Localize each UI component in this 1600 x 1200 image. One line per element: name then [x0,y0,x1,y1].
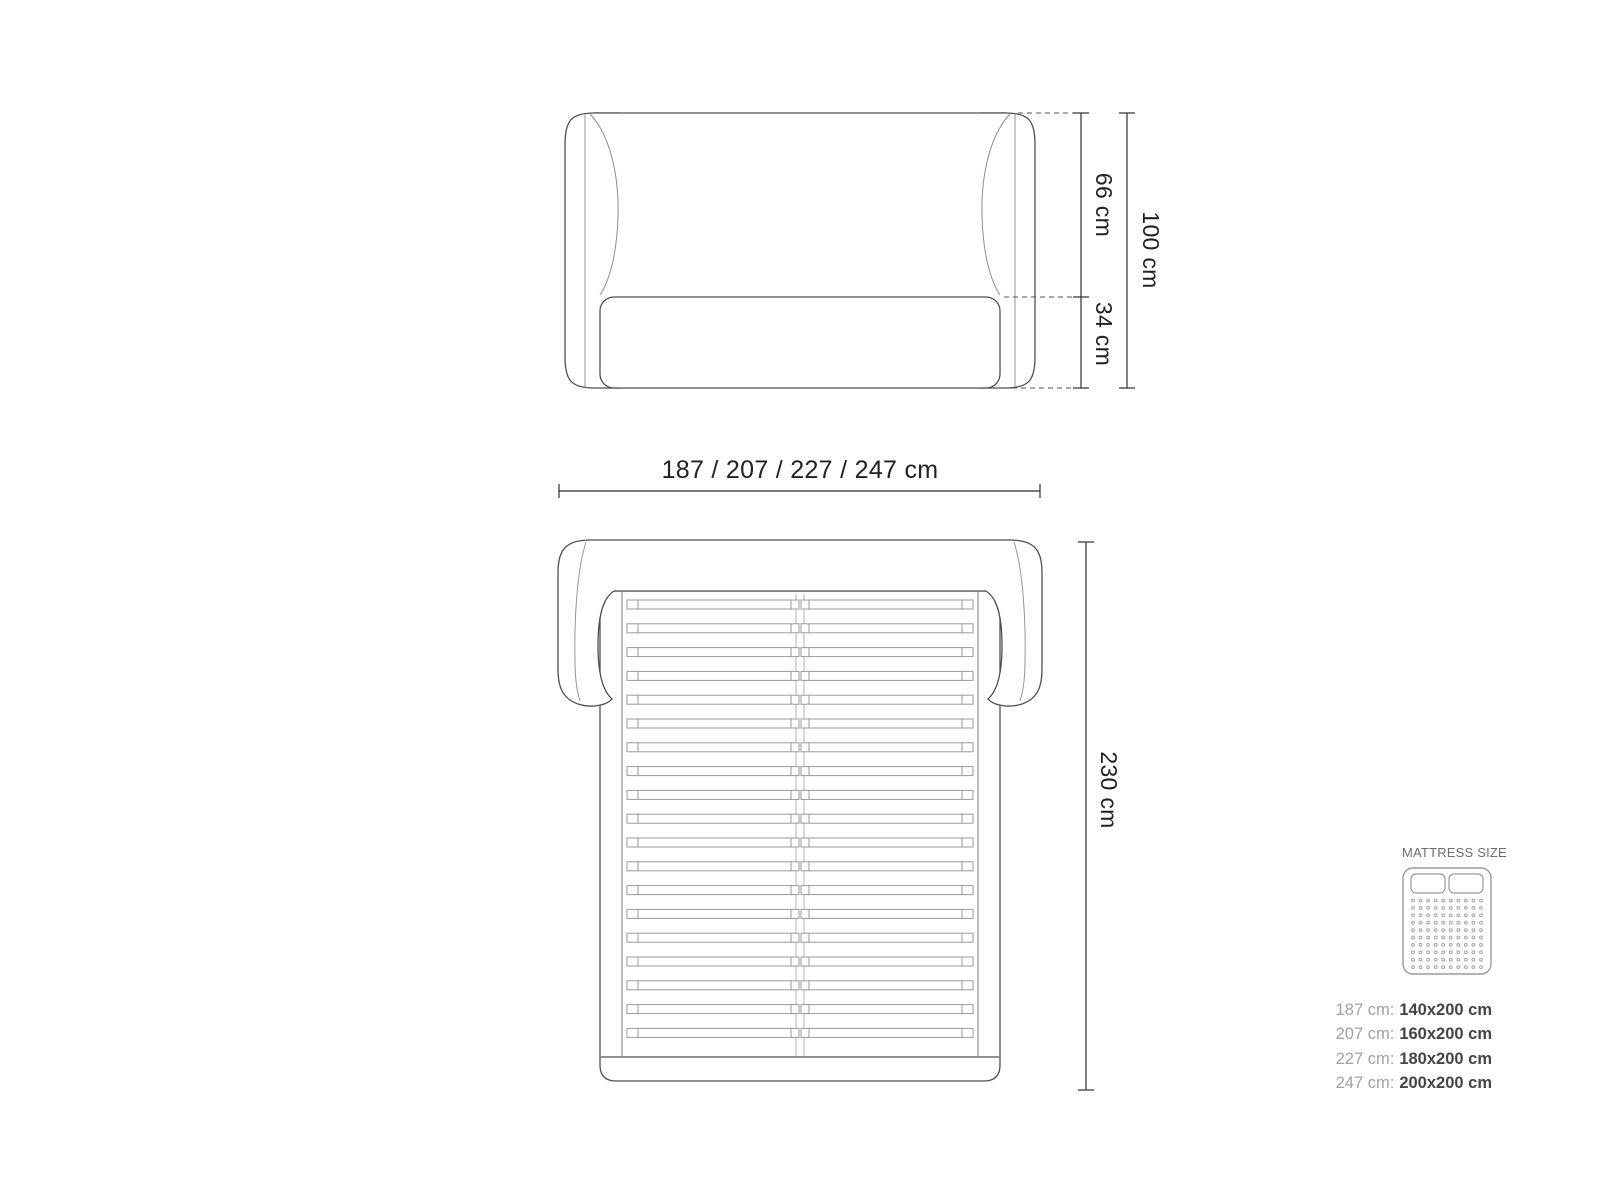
mattress-dot [1449,929,1452,932]
slat [801,719,809,728]
slat [801,838,809,847]
slat [809,600,962,609]
dim-label-34: 34 cm [1091,302,1117,366]
slat [809,909,962,918]
mattress-dot [1442,958,1445,961]
size-row-value: 180x200 cm [1399,1050,1492,1068]
size-row-label: 247 cm: [1336,1074,1395,1092]
mattress-dot [1464,966,1467,969]
mattress-dot [1412,907,1415,910]
mattress-dot [1434,921,1437,924]
slat [809,933,962,942]
size-row: 227 cm:180x200 cm [1330,1047,1492,1071]
slat [801,767,809,776]
mattress-dot [1464,944,1467,947]
size-row-label: 227 cm: [1336,1050,1395,1068]
slat [791,600,799,609]
legend-head: MATTRESS SIZE [1402,845,1492,980]
slat [638,719,791,728]
mattress-dot [1449,899,1452,902]
mattress-dot [1457,929,1460,932]
mattress-dot [1449,914,1452,917]
slat [791,886,799,895]
slat [627,600,638,609]
size-row-label: 187 cm: [1336,1001,1395,1019]
mattress-dot [1457,921,1460,924]
slat [638,1005,791,1014]
slat [638,862,791,871]
size-row-value: 160x200 cm [1399,1025,1492,1043]
slat [801,648,809,657]
mattress-dot [1419,936,1422,939]
slat [638,1028,791,1037]
slat [627,1028,638,1037]
mattress-dot [1419,899,1422,902]
mattress-dot [1419,951,1422,954]
mattress-dot [1480,951,1483,954]
slat [801,743,809,752]
mattress-dot [1412,929,1415,932]
mattress-dot [1457,944,1460,947]
mattress-dot [1464,929,1467,932]
mattress-dot [1449,921,1452,924]
mattress-dot [1412,958,1415,961]
mattress-dot [1427,899,1430,902]
mattress-dot [1434,929,1437,932]
slat [962,981,973,990]
mattress-dot [1412,951,1415,954]
slat [627,743,638,752]
slat [638,695,791,704]
slat [638,671,791,680]
slat [962,719,973,728]
mattress-dot [1434,944,1437,947]
slat [638,981,791,990]
mattress-dot [1442,921,1445,924]
legend-title: MATTRESS SIZE [1402,845,1492,860]
mattress-dot [1457,907,1460,910]
slat [791,624,799,633]
mattress-dot [1442,899,1445,902]
mattress-dot [1442,914,1445,917]
slat [809,838,962,847]
mattress-dot [1480,944,1483,947]
mattress-dot [1419,966,1422,969]
slat [962,909,973,918]
slat [801,886,809,895]
top-view [558,540,1042,1081]
slat [801,1028,809,1037]
slat [809,648,962,657]
slat [801,624,809,633]
slat [809,862,962,871]
slat [627,933,638,942]
mattress-dot [1472,944,1475,947]
mattress-dot [1419,907,1422,910]
mattress-dot [1472,966,1475,969]
mattress-dots [1412,899,1483,968]
slat [638,600,791,609]
slat [791,957,799,966]
slat [791,790,799,799]
slat [962,862,973,871]
slat [801,933,809,942]
mattress-dot [1480,929,1483,932]
size-row: 187 cm:140x200 cm [1330,998,1492,1022]
slat [962,1005,973,1014]
slat [638,624,791,633]
mattress-dot [1442,936,1445,939]
mattress-dot [1419,944,1422,947]
mattress-dot [1457,914,1460,917]
slat [638,790,791,799]
mattress-dot [1457,951,1460,954]
slat [638,909,791,918]
mattress-top-view-icon [1402,867,1492,975]
slat [627,719,638,728]
mattress-dot [1419,914,1422,917]
slat [962,838,973,847]
mattress-dot [1434,899,1437,902]
slat [791,933,799,942]
slat [638,814,791,823]
mattress-dot [1472,929,1475,932]
slat [627,981,638,990]
slat [809,957,962,966]
mattress-dot [1464,907,1467,910]
slat [791,648,799,657]
legend-size-rows: 187 cm:140x200 cm 207 cm:160x200 cm 227 … [1330,998,1492,1096]
slat [791,695,799,704]
mattress-dot [1464,936,1467,939]
pillow-right-icon [1449,874,1483,893]
slat [791,767,799,776]
slat [962,767,973,776]
slat [638,933,791,942]
mattress-dot [1419,921,1422,924]
mattress-dot [1449,951,1452,954]
slat [638,767,791,776]
mattress-dot [1472,921,1475,924]
size-row-value: 200x200 cm [1399,1074,1492,1092]
slat [801,671,809,680]
slat [791,719,799,728]
front-view [565,113,1035,388]
bed-dimension-diagram: 66 cm 34 cm 100 cm 187 / 207 / 227 / 247… [0,0,1600,1200]
slat [627,624,638,633]
slat [627,671,638,680]
mattress-dot [1464,958,1467,961]
mattress-dot [1427,951,1430,954]
size-row: 247 cm:200x200 cm [1330,1071,1492,1095]
mattress-dot [1427,921,1430,924]
slat [801,814,809,823]
mattress-dot [1480,921,1483,924]
mattress-dot [1412,966,1415,969]
slat [791,862,799,871]
front-base-box [600,297,1000,388]
mattress-dot [1449,907,1452,910]
slat [791,981,799,990]
slat [791,1005,799,1014]
size-row: 207 cm:160x200 cm [1330,1022,1492,1046]
slat [627,648,638,657]
mattress-dot [1449,944,1452,947]
pillow-left-icon [1411,874,1445,893]
slat [962,886,973,895]
slat [627,862,638,871]
slat [809,1028,962,1037]
slat [962,1028,973,1037]
slat [962,814,973,823]
slat [627,695,638,704]
slat [801,695,809,704]
slat [962,648,973,657]
slat [638,648,791,657]
width-dim-label: 187 / 207 / 227 / 247 cm [662,456,939,484]
slat [809,719,962,728]
dim-label-100: 100 cm [1138,211,1164,288]
mattress-dot [1442,929,1445,932]
mattress-dot [1449,966,1452,969]
mattress-dot [1419,958,1422,961]
size-row-label: 207 cm: [1336,1025,1395,1043]
mattress-dot [1412,914,1415,917]
mattress-dot [1480,958,1483,961]
mattress-dot [1427,914,1430,917]
slat [627,1005,638,1014]
slat [809,1005,962,1014]
mattress-dot [1427,936,1430,939]
mattress-dot [1449,958,1452,961]
mattress-dot [1412,936,1415,939]
slat [801,600,809,609]
slat [801,957,809,966]
slat [627,814,638,823]
slat [962,624,973,633]
mattress-dot [1472,907,1475,910]
mattress-dot [1457,936,1460,939]
mattress-dot [1464,914,1467,917]
slat [791,743,799,752]
top-view-dimension [1078,542,1094,1090]
mattress-dot [1472,951,1475,954]
mattress-dot [1419,929,1422,932]
mattress-dot [1472,914,1475,917]
slat [627,886,638,895]
slat [809,671,962,680]
mattress-dot [1480,936,1483,939]
mattress-dot [1457,899,1460,902]
slat [627,767,638,776]
slat [962,671,973,680]
dim-label-230: 230 cm [1096,751,1122,828]
slat [962,790,973,799]
mattress-dot [1442,907,1445,910]
mattress-dot [1480,907,1483,910]
slat [627,790,638,799]
mattress-dot [1427,907,1430,910]
mattress-dot [1427,966,1430,969]
mattress-dot [1412,921,1415,924]
slat [801,1005,809,1014]
mattress-dot [1434,966,1437,969]
slat [791,671,799,680]
size-row-value: 140x200 cm [1399,1001,1492,1019]
slat [791,1028,799,1037]
slat [791,814,799,823]
slat [962,695,973,704]
mattress-dot [1434,914,1437,917]
width-dimension [559,484,1040,498]
mattress-dot [1427,944,1430,947]
mattress-dot [1457,958,1460,961]
mattress-dot [1427,958,1430,961]
slat [801,862,809,871]
mattress-dot [1464,951,1467,954]
slat [801,790,809,799]
mattress-dot [1442,966,1445,969]
slat [809,790,962,799]
mattress-dot [1434,951,1437,954]
slat [627,909,638,918]
slat [801,909,809,918]
slat [801,981,809,990]
mattress-dot [1442,951,1445,954]
slat [962,957,973,966]
slat [638,886,791,895]
slat [962,743,973,752]
slat [809,624,962,633]
slat [962,600,973,609]
slat [627,838,638,847]
mattress-dot [1472,958,1475,961]
mattress-dot [1434,936,1437,939]
mattress-dot [1449,936,1452,939]
mattress-dot [1464,921,1467,924]
mattress-size-legend: MATTRESS SIZE 187 cm:140x200 cm 207 cm:1… [1330,845,1492,1096]
mattress-dot [1412,899,1415,902]
slat [962,933,973,942]
dim-label-66: 66 cm [1091,173,1117,237]
slat [791,838,799,847]
mattress-dot [1434,958,1437,961]
mattress-dot [1472,899,1475,902]
slat [627,957,638,966]
mattress-dot [1480,966,1483,969]
slat [809,767,962,776]
slat [809,981,962,990]
mattress-dot [1472,936,1475,939]
mattress-dot [1457,966,1460,969]
mattress-dot [1427,929,1430,932]
mattress-dot [1434,907,1437,910]
slat [638,957,791,966]
slat [638,838,791,847]
slat [809,695,962,704]
mattress-dot [1480,899,1483,902]
mattress-dot [1464,899,1467,902]
mattress-dot [1442,944,1445,947]
mattress-dot [1412,944,1415,947]
slat [638,743,791,752]
slat [791,909,799,918]
slat [809,814,962,823]
mattress-dot [1480,914,1483,917]
slat [809,886,962,895]
slat [809,743,962,752]
